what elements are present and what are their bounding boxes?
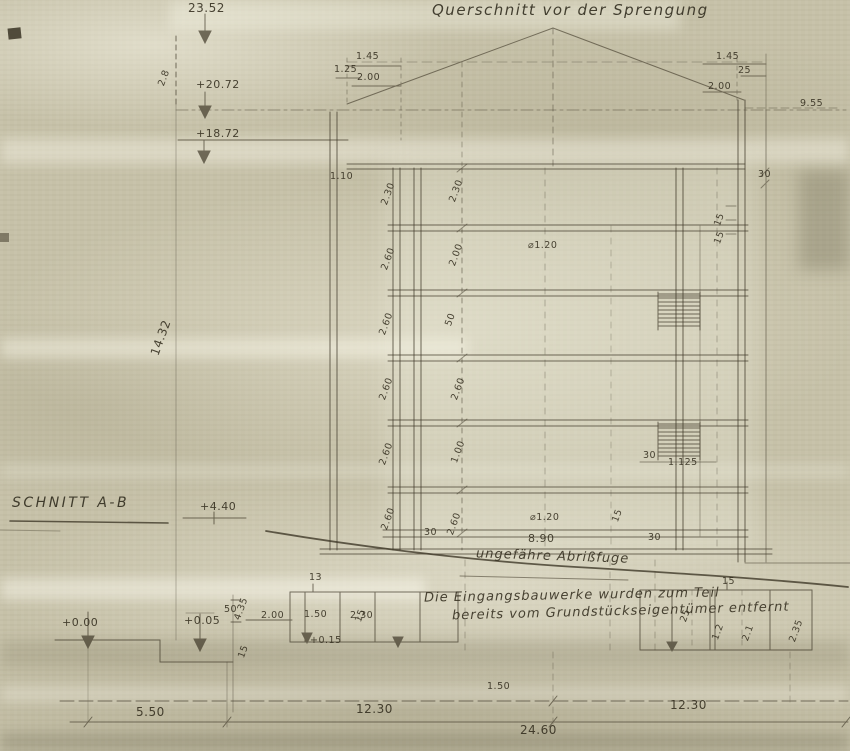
bottom-dim-annex: 5.50 xyxy=(136,706,165,718)
entrance-left-depth: 2.00 xyxy=(261,611,284,621)
entrance-left-tick-13: 13 xyxy=(309,573,322,583)
roof-dim-right-3: 2.00 xyxy=(708,82,731,92)
roof xyxy=(336,28,838,166)
entrance-left-room-a: 1.50 xyxy=(304,610,327,620)
slab-tick-30-b: 30 xyxy=(648,533,661,543)
roof-dim-left-2: 1.25 xyxy=(334,65,357,75)
bottom-dimension-lines xyxy=(60,648,850,727)
slab-tick-30-c: 30 xyxy=(643,451,656,461)
bottom-dim-total: 24.60 xyxy=(520,724,557,736)
bottom-dim-small: 1.50 xyxy=(487,682,510,692)
elevation-eave: +20.72 xyxy=(196,79,240,90)
elevation-mid: +4.40 xyxy=(200,501,236,512)
slab-tick-30-a: 30 xyxy=(424,528,437,538)
interior-dim-column xyxy=(457,164,467,550)
dim-parapet: 1.10 xyxy=(330,172,353,182)
drawing-linework xyxy=(0,0,850,751)
elevation-attic: +18.72 xyxy=(196,128,240,139)
elevation-ridge: 23.52 xyxy=(188,2,225,14)
right-dim-column xyxy=(640,110,769,562)
slab-tick-30-d: 30 xyxy=(758,170,771,180)
ink-blots xyxy=(0,27,22,242)
floor-slabs xyxy=(320,164,772,554)
door-width-upper: ⌀1.20 xyxy=(528,241,557,251)
elevation-entrance: +0.05 xyxy=(184,615,220,626)
section-underline xyxy=(0,521,168,531)
bottom-dim-bay-left: 12.30 xyxy=(356,703,393,715)
ground-left xyxy=(55,595,233,712)
dim-width-lower: 8.90 xyxy=(528,533,555,544)
section-label: SCHNITT A-B xyxy=(12,496,129,510)
stairs-hatch xyxy=(658,292,700,460)
roof-dim-right-1: 1.45 xyxy=(716,52,739,62)
roof-dim-left-1: 1.45 xyxy=(356,52,379,62)
door-width-lower: ⌀1.20 xyxy=(530,513,559,523)
roof-dim-right-2: 25 xyxy=(738,66,751,76)
dim-opening-right: 1.125 xyxy=(668,458,698,468)
elevation-step: +0.15 xyxy=(310,636,342,646)
roof-dim-left-3: 2.00 xyxy=(357,73,380,83)
roof-dim-offset: 9.55 xyxy=(800,99,823,109)
blueprint-scan: Querschnitt vor der Sprengung SCHNITT A-… xyxy=(0,0,850,751)
drawing-title: Querschnitt vor der Sprengung xyxy=(432,3,709,18)
entrance-right-tick-15: 15 xyxy=(722,577,735,587)
bottom-dim-bay-right: 12.30 xyxy=(670,699,707,711)
elevation-ground: +0.00 xyxy=(62,617,98,628)
entrance-left-sill: 50 xyxy=(224,605,237,615)
